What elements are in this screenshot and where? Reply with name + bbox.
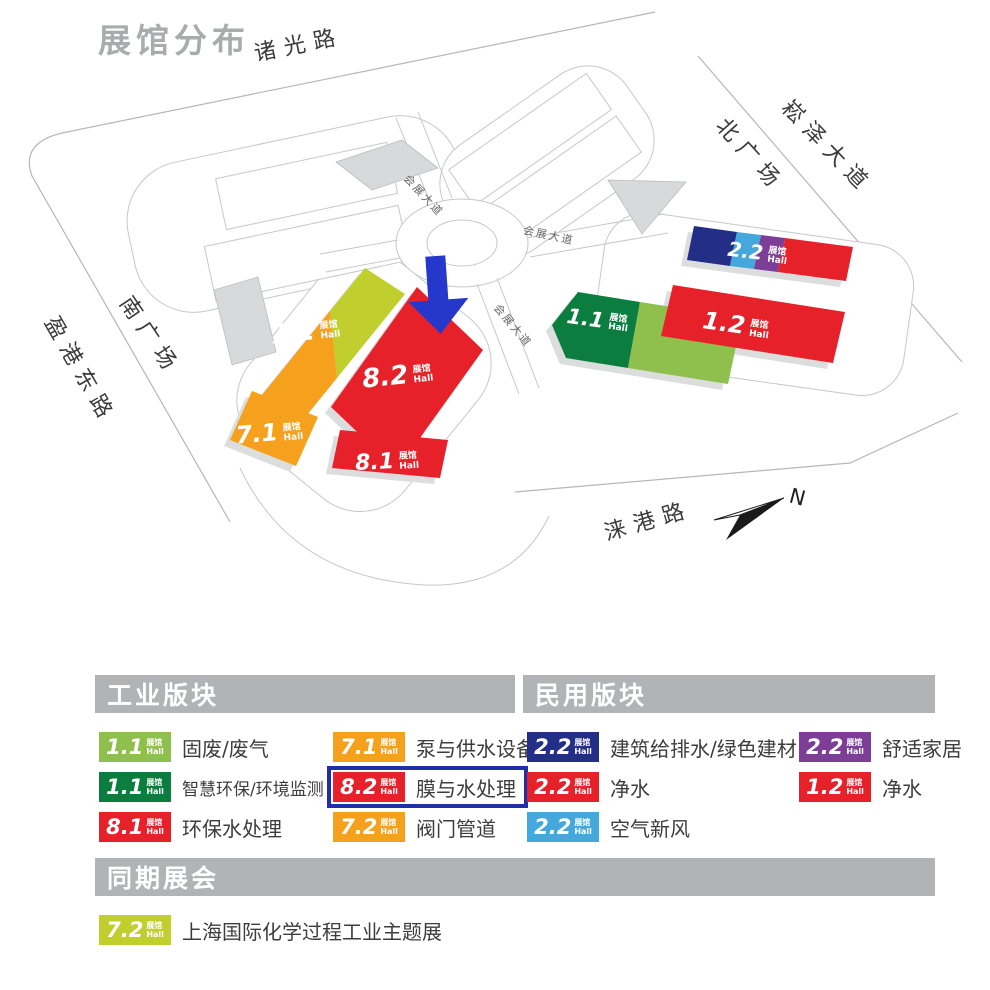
svg-text:7.2: 7.2	[268, 316, 317, 351]
legend-label: 固废/废气	[182, 733, 269, 762]
hall-badge-1.1-dgreen: 1.1 展馆Hall	[99, 772, 171, 802]
highlight-box-8.2: 8.2 展馆Hall 膜与水处理	[327, 766, 528, 808]
section-civil-items: 2.2 展馆Hall 建筑给排水/绿色建材 2.2 展馆Hall 净水 2.2 …	[523, 727, 935, 847]
hall-badge-7.1: 7.1 展馆Hall	[333, 732, 405, 762]
section-concurrent-header: 同期展会	[95, 858, 935, 896]
hall-badge-2.2-lblue: 2.2 展馆Hall	[527, 812, 599, 842]
svg-text:Hall: Hall	[320, 329, 341, 341]
svg-text:Hall: Hall	[399, 461, 419, 472]
legend-item-smart-env: 1.1 展馆Hall 智慧环保/环境监测	[99, 767, 333, 807]
hall-badge-8.2: 8.2 展馆Hall	[333, 772, 405, 802]
legend-label: 舒适家居	[882, 733, 962, 762]
svg-text:Hall: Hall	[413, 373, 434, 385]
central-ring	[396, 199, 528, 287]
section-industrial-header: 工业版块	[95, 675, 515, 713]
section-civil-header: 民用版块	[523, 675, 935, 713]
section-civil: 民用版块 2.2 展馆Hall 建筑给排水/绿色建材 2.2 展馆Hall 净水…	[523, 675, 935, 847]
venue-map: 7.2 展馆 Hall 7.1 展馆 Hall 8.2 展馆 Hall 8.1 …	[0, 0, 990, 665]
road-label-laigang: 涞港路	[601, 497, 694, 546]
legend-label: 建筑给排水/绿色建材	[610, 733, 797, 762]
svg-text:7.1: 7.1	[234, 418, 279, 450]
svg-text:Hall: Hall	[283, 432, 304, 444]
svg-text:2.2: 2.2	[726, 237, 764, 265]
hall-badge-2.2-purple: 2.2 展馆Hall	[799, 732, 871, 762]
section-industrial-items: 1.1 展馆Hall 固废/废气 1.1 展馆Hall 智慧环保/环境监测 8.…	[95, 727, 515, 847]
legend-item-env-water: 8.1 展馆Hall 环保水处理	[99, 807, 333, 847]
hall-badge-8.1: 8.1 展馆Hall	[99, 812, 171, 842]
legend-item-valves: 7.2 展馆Hall 阀门管道	[333, 807, 536, 847]
compass: N	[714, 484, 808, 540]
legend-item-solid-waste: 1.1 展馆Hall 固废/废气	[99, 727, 333, 767]
road-label-exhibition-ave-3: 会展大道	[491, 301, 535, 350]
hall-badge-2.2-red: 2.2 展馆Hall	[527, 772, 599, 802]
svg-text:展馆: 展馆	[398, 449, 417, 462]
legend-label: 空气新风	[610, 813, 690, 842]
legend-item-building-drainage: 2.2 展馆Hall 建筑给排水/绿色建材	[527, 727, 799, 767]
legend-item-pumps: 7.1 展馆Hall 泵与供水设备	[333, 727, 536, 767]
page: 展馆分布	[0, 0, 990, 990]
compass-n-label: N	[787, 484, 808, 511]
hall-badge-1.1-lgreen: 1.1 展馆Hall	[99, 732, 171, 762]
legend-label: 泵与供水设备	[416, 733, 536, 762]
section-industrial: 工业版块 1.1 展馆Hall 固废/废气 1.1 展馆Hall 智慧环保/环境…	[95, 675, 515, 847]
legend-item-comfort-home: 2.2 展馆Hall 舒适家居	[799, 727, 962, 767]
road-label-zhuguang: 诸光路	[252, 24, 345, 66]
hall-badge-1.2: 1.2 展馆Hall	[799, 772, 871, 802]
hall-badge-2.2-navy: 2.2 展馆Hall	[527, 732, 599, 762]
legend-label: 智慧环保/环境监测	[182, 775, 324, 800]
section-concurrent: 同期展会 7.2 展馆Hall 上海国际化学过程工业主题展	[95, 858, 935, 954]
legend-label: 阀门管道	[416, 813, 496, 842]
legend-item-clean-water-22: 2.2 展馆Hall 净水	[527, 767, 799, 807]
road-label-songze: 崧泽大道	[776, 96, 877, 200]
legend-label: 上海国际化学过程工业主题展	[182, 916, 442, 945]
legend-item-chemical-process: 7.2 展馆Hall 上海国际化学过程工业主题展	[99, 910, 935, 950]
road-label-yinggang: 盈港东路	[39, 313, 121, 429]
svg-text:8.2: 8.2	[361, 360, 410, 395]
legend-item-fresh-air: 2.2 展馆Hall 空气新风	[527, 807, 799, 847]
legend-label: 净水	[882, 773, 922, 802]
legend-item-clean-water-12: 1.2 展馆Hall 净水	[799, 767, 962, 807]
legend-label: 净水	[610, 773, 650, 802]
legend-label: 环保水处理	[182, 813, 282, 842]
svg-text:1.2: 1.2	[701, 306, 747, 340]
section-concurrent-items: 7.2 展馆Hall 上海国际化学过程工业主题展	[95, 910, 935, 954]
road-label-north-plaza: 北广场	[710, 114, 789, 198]
legend-label: 膜与水处理	[416, 773, 516, 802]
hall-badge-7.2-ygreen: 7.2 展馆Hall	[99, 915, 171, 945]
svg-text:1.1: 1.1	[565, 304, 605, 333]
svg-text:8.1: 8.1	[354, 449, 394, 476]
hall-badge-7.2-orange: 7.2 展馆Hall	[333, 812, 405, 842]
legend-item-membrane-water: 8.2 展馆Hall 膜与水处理	[333, 767, 536, 807]
